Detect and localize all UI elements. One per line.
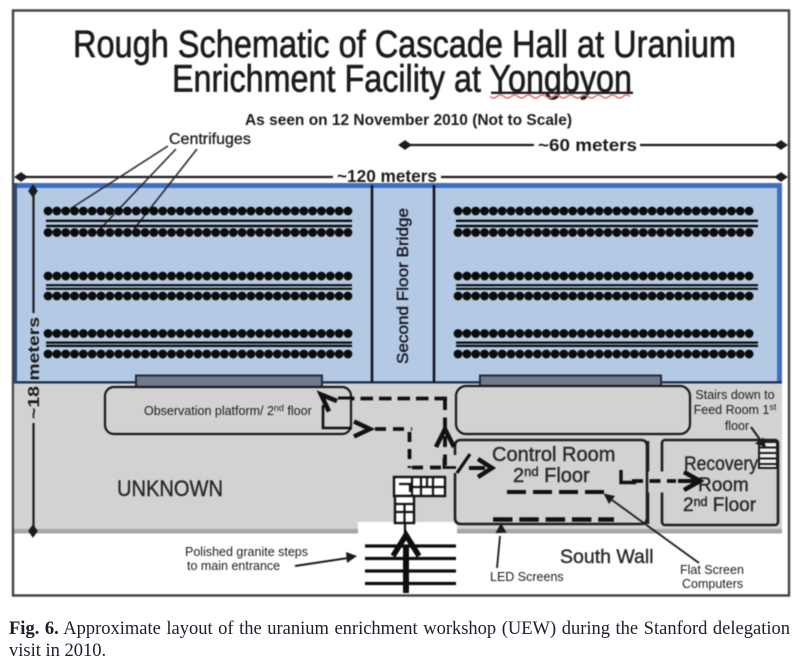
- svg-text:Control Room: Control Room: [492, 444, 615, 466]
- svg-text:to main entrance: to main entrance: [187, 559, 280, 573]
- svg-text:As seen on 12 November 2010 (N: As seen on 12 November 2010 (Not to Scal…: [245, 112, 572, 129]
- svg-text:LED Screens: LED Screens: [490, 570, 564, 584]
- svg-text:Flat Screen: Flat Screen: [680, 563, 744, 577]
- svg-text:floor: floor: [725, 419, 749, 433]
- svg-text:Feed Room 1st: Feed Room 1st: [694, 402, 777, 417]
- svg-text:~60 meters: ~60 meters: [538, 135, 637, 155]
- svg-text:Second Floor Bridge: Second Floor Bridge: [395, 208, 412, 364]
- svg-text:Observation platform/ 2nd floo: Observation platform/ 2nd floor: [144, 403, 312, 418]
- svg-text:Stairs down to: Stairs down to: [695, 388, 774, 402]
- svg-text:Polished granite steps: Polished granite steps: [185, 545, 308, 559]
- svg-text:South Wall: South Wall: [560, 546, 654, 568]
- svg-text:Enrichment Facility at Yongbyo: Enrichment Facility at Yongbyon: [172, 59, 632, 101]
- svg-text:~18 meters: ~18 meters: [26, 317, 43, 419]
- svg-text:Recovery: Recovery: [684, 454, 758, 475]
- svg-text:Computers: Computers: [682, 577, 743, 591]
- svg-text:Room: Room: [698, 475, 749, 496]
- svg-text:UNKNOWN: UNKNOWN: [117, 476, 223, 501]
- svg-text:Centrifuges: Centrifuges: [169, 131, 251, 148]
